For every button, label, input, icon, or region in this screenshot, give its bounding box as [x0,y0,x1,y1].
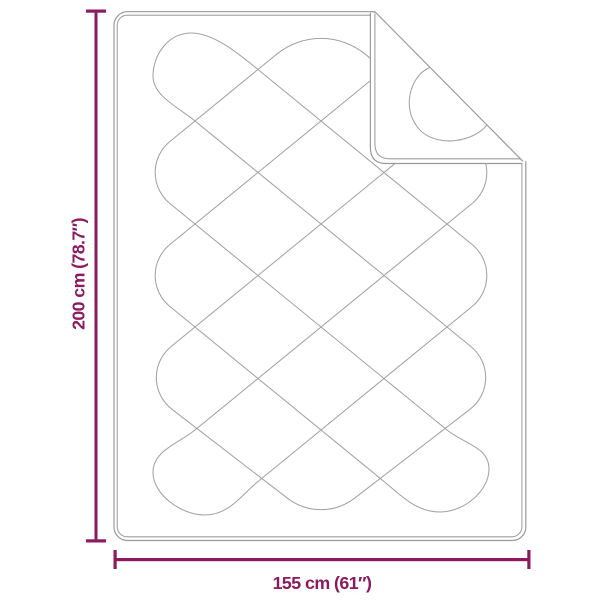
svg-text:155 cm (61″): 155 cm (61″) [273,573,372,593]
svg-text:200 cm (78.7″): 200 cm (78.7″) [69,217,89,329]
